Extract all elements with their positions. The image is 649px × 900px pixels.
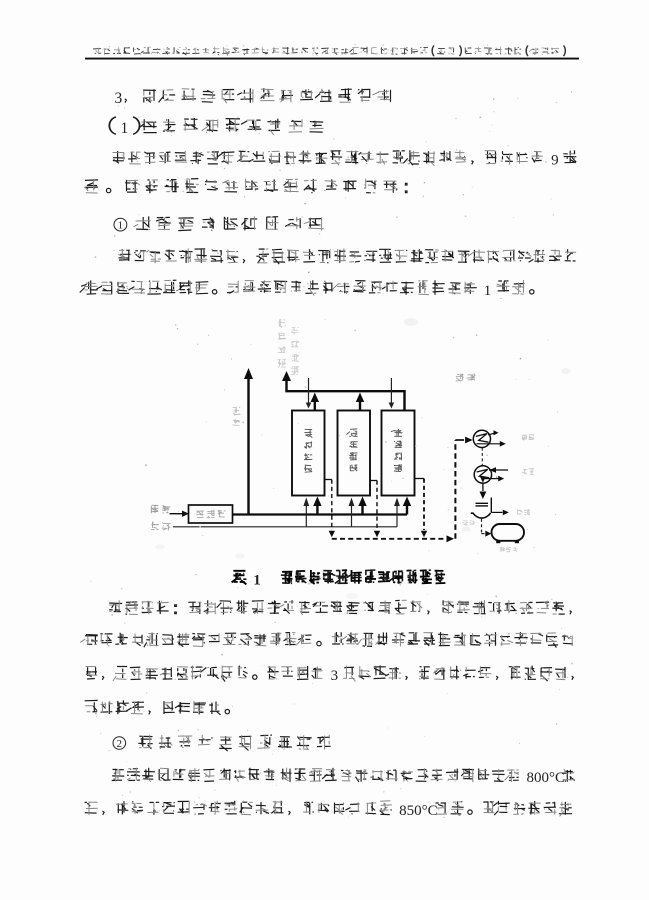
svg-text:3: 3 (115, 90, 123, 107)
svg-text:9: 9 (551, 153, 559, 169)
svg-text:°C: °C (549, 770, 565, 786)
svg-text:1: 1 (121, 120, 129, 137)
svg-text:1: 1 (253, 573, 261, 589)
svg-text:2: 2 (117, 738, 123, 750)
svg-text:1: 1 (484, 283, 492, 299)
svg-text:°C: °C (422, 803, 438, 819)
svg-text:1: 1 (118, 220, 124, 232)
svg-text:850: 850 (399, 803, 422, 819)
svg-text:800: 800 (527, 770, 550, 786)
svg-text:3: 3 (331, 668, 339, 684)
